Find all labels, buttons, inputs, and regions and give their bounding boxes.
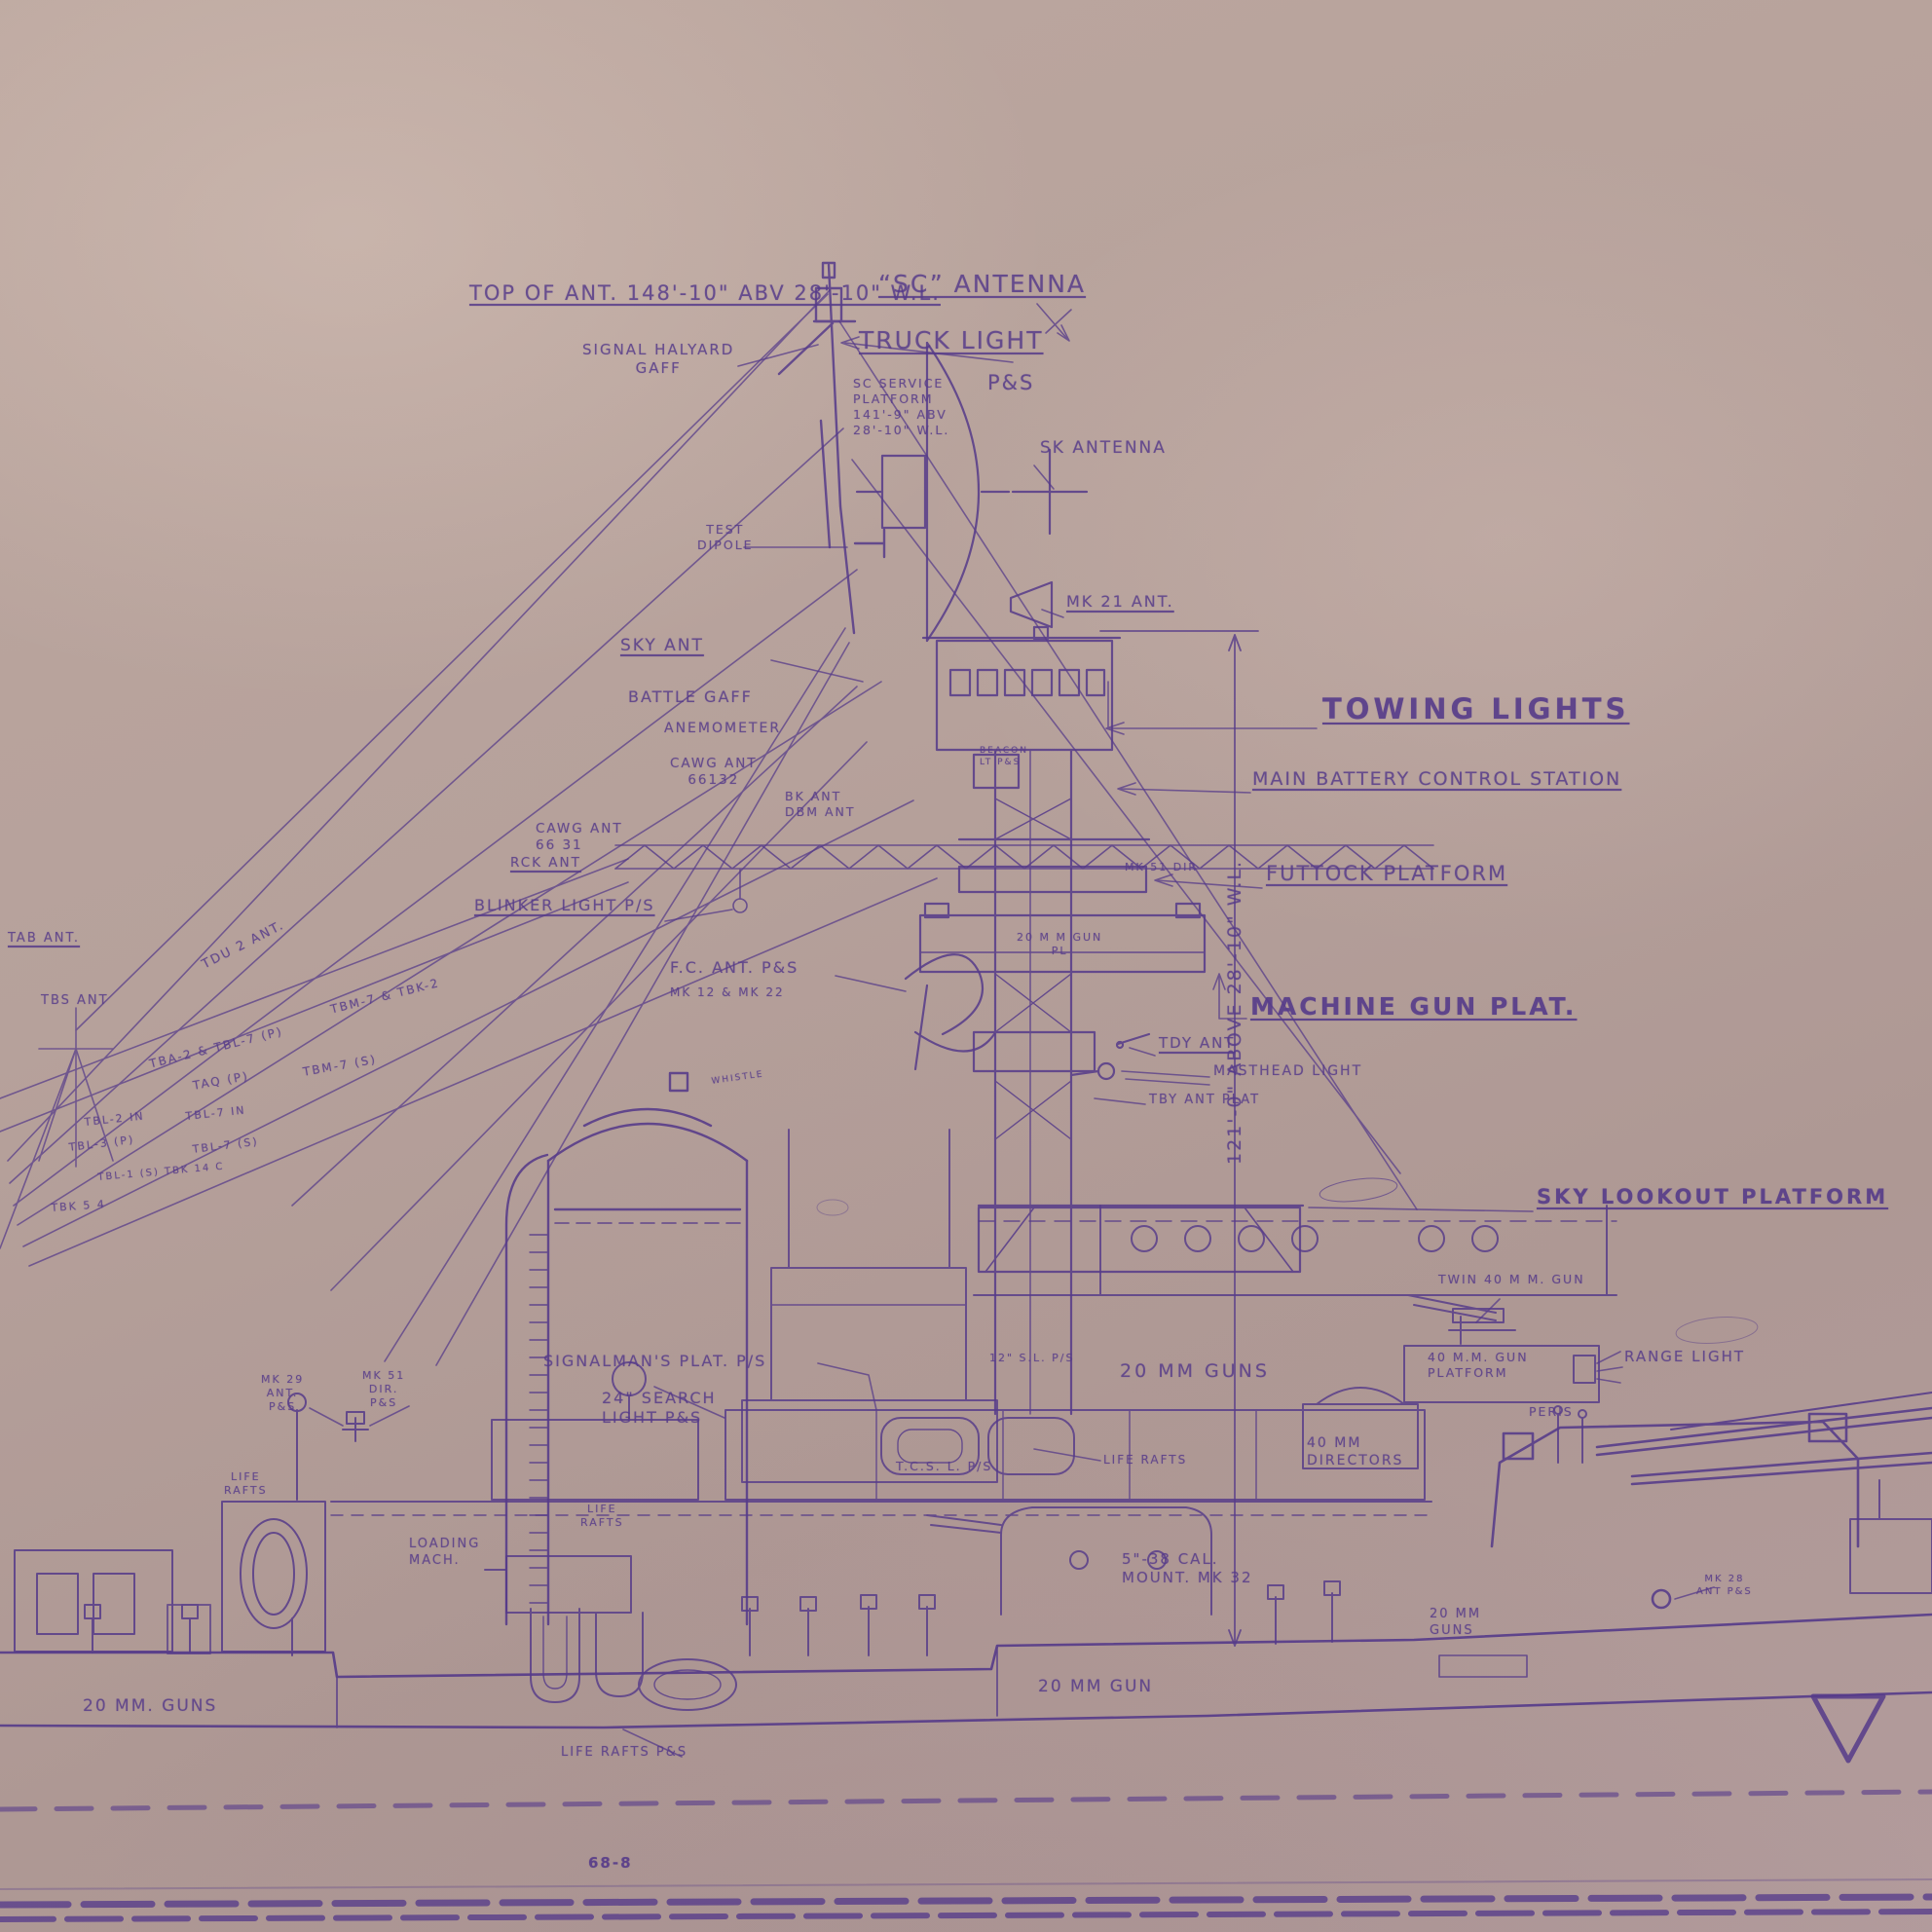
annotation-sky-ant: SKY ANT (620, 636, 704, 657)
annotation-taq-p: TAQ (P) (192, 1069, 250, 1094)
annotation-beacon-lt: BEACON LT P&S (980, 746, 1028, 768)
annotation-towing-lights: TOWING LIGHTS (1322, 691, 1629, 727)
annotation-tbm7-s: TBM-7 (S) (302, 1053, 378, 1080)
annotation-machine-gun-plat: MACHINE GUN PLAT. (1250, 991, 1577, 1022)
annotation-anemometer: ANEMOMETER (664, 721, 781, 738)
annotation-tbl7-s: TBL-7 (S) (192, 1135, 259, 1157)
annotation-bk-ant-dbm-ant: BK ANT DBM ANT (785, 789, 856, 820)
annotation-mk51-dir-ps: MK 51 DIR. P&S (362, 1369, 405, 1410)
annotation-tdu2-ant: TDU 2 ANT. (200, 918, 288, 974)
annotation-battle-gaff: BATTLE GAFF (628, 687, 753, 707)
annotation-truck-light-ps: P&S (987, 370, 1034, 396)
annotation-futtock-platform: FUTTOCK PLATFORM (1266, 861, 1507, 887)
annotation-tbl7-in: TBL-7 IN (185, 1104, 246, 1124)
annotation-mk51-dir-mast: MK 51 DIR (1125, 861, 1198, 874)
annotation-plat-40mm: 40 M.M. GUN PLATFORM (1428, 1350, 1529, 1381)
annotation-mark-688: 68-8 (588, 1854, 633, 1873)
annotation-fc-ant: F.C. ANT. P&S (670, 958, 799, 978)
annotation-tbl2-in: TBL-2 IN (84, 1110, 145, 1130)
blueprint-paper: TOP OF ANT. 148'-10" ABV 28'-10" W.L.“SC… (0, 0, 1932, 1932)
annotation-guns-20mm-aft: 20 MM GUNS (1430, 1607, 1481, 1639)
annotation-sk-antenna: SK ANTENNA (1040, 438, 1167, 460)
annotation-signalmans-plat: SIGNALMAN'S PLAT. P/S (543, 1352, 766, 1371)
annotation-range-light: RANGE LIGHT (1624, 1348, 1745, 1366)
annotation-sky-lookout-platform: SKY LOOKOUT PLATFORM (1537, 1184, 1888, 1210)
annotation-life-rafts-aft: LIFE RAFTS (1103, 1453, 1187, 1468)
annotation-sc-service-platform: SC SERVICE PLATFORM 141'-9" ABV 28'-10" … (853, 376, 949, 438)
annotation-tba2-tbl7-p: TBA-2 & TBL-7 (P) (148, 1024, 284, 1072)
annotation-dirs-40mm: 40 MM DIRECTORS (1307, 1435, 1403, 1470)
annotation-fc-ant-marks: MK 12 & MK 22 (670, 985, 785, 1000)
annotation-mk21-ant: MK 21 ANT. (1066, 592, 1174, 612)
annotation-loading-mach: LOADING MACH. (409, 1537, 480, 1569)
annotation-mk28-ant: MK 28 ANT P&S (1696, 1574, 1753, 1599)
annotation-mk29-ant: MK 29 ANT. P&S (261, 1373, 304, 1414)
annotation-life-rafts-ps: LIFE RAFTS P&S (561, 1745, 687, 1762)
annotation-guns-20mm-upper: 20 MM GUNS (1120, 1359, 1270, 1383)
annotation-twin-40mm-gun: TWIN 40 M M. GUN (1438, 1272, 1585, 1287)
annotation-cal-5-38: 5"-38 CAL. MOUNT. MK 32 (1122, 1550, 1253, 1587)
annotation-cawg-ant-upper: CAWG ANT 66132 (670, 756, 758, 790)
annotation-cawg-ant-lower: CAWG ANT 66 31 (536, 821, 623, 855)
annotation-masthead-light: MASTHEAD LIGHT (1213, 1063, 1362, 1081)
annotation-guns-20mm-bow: 20 MM. GUNS (83, 1696, 217, 1718)
annotation-tbk54: TBK 5 4 (51, 1198, 106, 1215)
annotation-sl-12: 12" S.L. P/S (989, 1352, 1074, 1365)
annotation-life-rafts-mid: LIFE RAFTS (580, 1503, 624, 1530)
annotation-tbl3-p: TBL-3 (P) (68, 1133, 135, 1155)
annotation-peris: PERIS (1529, 1404, 1574, 1420)
annotation-tab-ant: TAB ANT. (8, 931, 80, 947)
annotation-layer: TOP OF ANT. 148'-10" ABV 28'-10" W.L.“SC… (0, 0, 1932, 1932)
annotation-search-light-24: 24" SEARCH LIGHT P&S (602, 1389, 717, 1429)
annotation-life-rafts-fwd: LIFE RAFTS (224, 1470, 268, 1498)
annotation-tcs-l: T.C.S. L. P/S (896, 1459, 992, 1474)
annotation-tbs-ant: TBS ANT (41, 993, 109, 1010)
annotation-whistle: WHISTLE (711, 1069, 764, 1088)
annotation-dim-121: 121'-0" ABOVE 28'-10" W.L. (1223, 860, 1246, 1165)
annotation-tdy-ant: TDY ANT (1159, 1034, 1235, 1053)
annotation-gun-20mm-mid: 20 MM GUN (1038, 1677, 1153, 1698)
annotation-tbm7-tbk2: TBM-7 & TBK-2 (329, 976, 441, 1018)
annotation-signal-halyard-gaff: SIGNAL HALYARD GAFF (582, 341, 734, 378)
annotation-tbl1-s-tbk14: TBL-1 (S) TBK 14 C (97, 1162, 225, 1185)
annotation-top-of-ant: TOP OF ANT. 148'-10" ABV 28'-10" W.L. (469, 280, 941, 307)
annotation-test-dipole: TEST DIPOLE (697, 522, 754, 553)
annotation-gun-pl-20mm: 20 M M GUN PL (1017, 931, 1102, 958)
annotation-blinker-light: BLINKER LIGHT P/S (474, 896, 655, 915)
annotation-main-battery-control-station: MAIN BATTERY CONTROL STATION (1252, 767, 1621, 791)
annotation-rck-ant: RCK ANT (510, 855, 581, 872)
annotation-truck-light: TRUCK LIGHT (859, 325, 1043, 356)
annotation-tby-ant-plat: TBY ANT PLAT (1149, 1093, 1260, 1109)
annotation-sc-antenna: “SC” ANTENNA (878, 269, 1086, 300)
